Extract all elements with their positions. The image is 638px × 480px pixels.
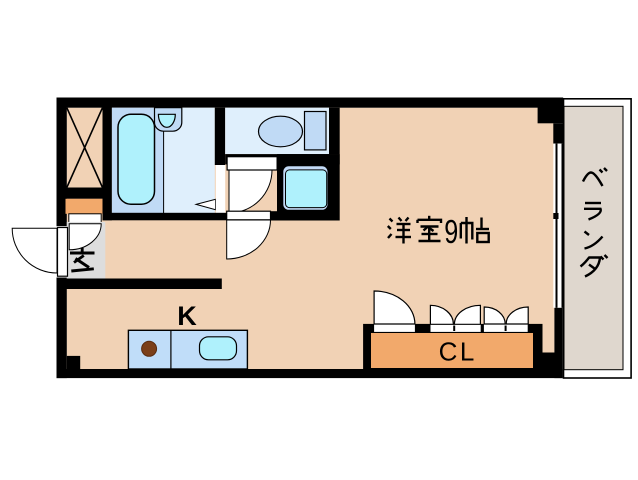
svg-text:9: 9 (444, 213, 458, 250)
svg-text:K: K (177, 301, 197, 331)
svg-text:CL: CL (439, 336, 477, 366)
